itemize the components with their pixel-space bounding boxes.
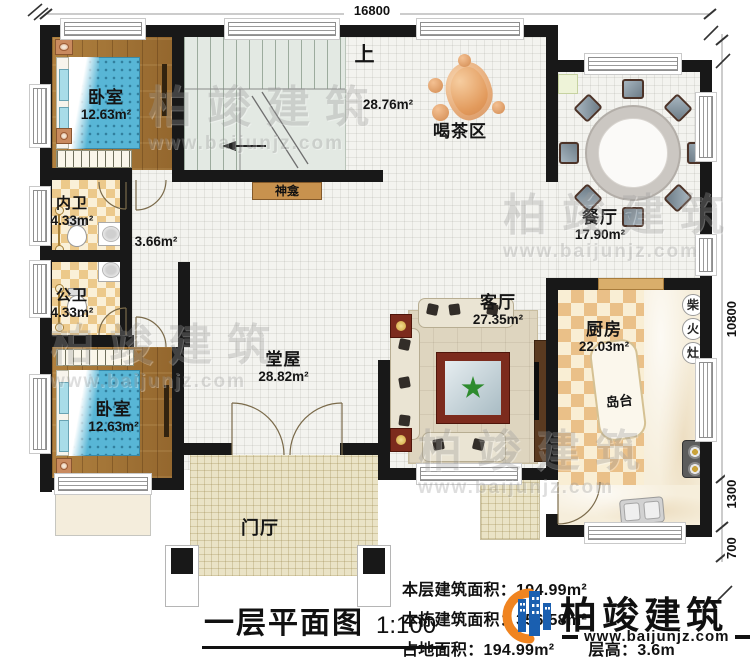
stairs-up-label: 上 — [350, 44, 380, 66]
window — [64, 22, 142, 36]
plan-scale: 1:100 — [376, 612, 436, 639]
pass-counter — [598, 278, 664, 290]
sofa-pillow — [472, 438, 485, 451]
wall — [172, 170, 383, 182]
pebble — [458, 54, 471, 67]
room-label-inner-bath: 内卫 4.33m² — [40, 196, 104, 228]
wall — [52, 250, 122, 262]
kitchen-entry-step — [480, 478, 540, 540]
window — [699, 362, 713, 438]
stair-treads-upper — [184, 37, 345, 89]
wardrobe — [56, 150, 132, 168]
nightstand — [56, 128, 72, 144]
wall — [172, 347, 184, 490]
sofa-pillow — [398, 376, 411, 389]
bay-slab-bedroom-bottom — [55, 492, 151, 536]
wall — [40, 335, 134, 347]
window — [699, 96, 713, 158]
sofa-pillow — [432, 438, 445, 451]
cabinet — [558, 74, 578, 94]
kitchen-sink — [619, 496, 665, 526]
url-bar-right — [735, 635, 750, 639]
room-label-dining: 餐厅 17.90m² — [555, 208, 645, 242]
stat-storey-height: 层高：3.6m — [588, 642, 675, 659]
window — [33, 378, 47, 450]
window — [588, 526, 682, 540]
dimension-right-low: 700 — [725, 529, 739, 567]
pebble — [428, 78, 443, 93]
window — [588, 57, 678, 71]
room-label-tea: 喝茶区 — [420, 122, 500, 141]
plan-title: 一层平面图 — [204, 607, 364, 640]
porch-column — [363, 548, 385, 574]
wall — [172, 37, 184, 182]
room-label-living: 客厅 27.35m² — [452, 293, 544, 327]
pebble — [492, 101, 505, 114]
wall — [40, 168, 132, 180]
window — [699, 238, 713, 272]
pebble — [432, 104, 449, 121]
tv — [162, 64, 167, 116]
toilet-bowl — [67, 225, 87, 247]
nightstand — [55, 39, 73, 55]
room-label-foyer: 门厅 — [238, 518, 282, 538]
stair-treads-lower — [184, 89, 240, 170]
wall — [664, 278, 712, 290]
window — [58, 477, 148, 491]
nightstand — [56, 458, 72, 474]
room-label-bedroom-bottom: 卧室 12.63m² — [66, 400, 161, 434]
dining-chair — [622, 79, 644, 99]
room-label-public-bath: 公卫 4.33m² — [40, 288, 104, 320]
window — [33, 88, 47, 144]
shrine: 神龛 — [252, 182, 322, 200]
wall — [546, 37, 558, 182]
sink-basin — [643, 500, 661, 519]
window — [420, 22, 520, 36]
url-bar-left — [562, 635, 578, 639]
wardrobe — [56, 349, 134, 366]
sofa-pillow — [398, 338, 411, 351]
window — [228, 22, 336, 36]
side-table — [390, 314, 412, 338]
brand-logo-icon — [496, 584, 560, 646]
wall — [120, 180, 132, 347]
floorplan-canvas: 神龛 — [0, 0, 750, 649]
dimension-right-mid: 1300 — [725, 471, 739, 517]
room-label-bedroom-top: 卧室 12.63m² — [61, 88, 151, 122]
porch-column — [171, 548, 193, 574]
wall — [178, 262, 190, 347]
wall — [546, 278, 558, 480]
tea-area-value: 28.76m² — [353, 97, 423, 112]
coffee-table — [436, 352, 510, 424]
side-table — [390, 428, 412, 452]
tv — [164, 385, 169, 437]
corridor-area-label: 3.66m² — [128, 234, 184, 249]
foyer-porch — [190, 455, 378, 576]
sofa-pillow — [398, 414, 410, 426]
wall — [378, 360, 390, 470]
dimension-right: 10800 — [725, 291, 739, 347]
room-label-hall: 堂屋 28.82m² — [236, 350, 331, 384]
room-label-kitchen: 厨房 22.03m² — [568, 320, 640, 354]
plan-title-block: 一层平面图1:100 — [202, 598, 446, 649]
dining-chair — [559, 142, 579, 164]
sink-basin — [623, 502, 641, 521]
sofa-chair — [422, 432, 506, 462]
tv — [534, 362, 539, 420]
wall — [340, 443, 378, 455]
sofa-pillow — [426, 303, 439, 316]
wall — [184, 443, 232, 455]
sofa-main — [390, 328, 420, 440]
wall — [558, 278, 598, 290]
dimension-top: 16800 — [344, 4, 400, 18]
window — [420, 467, 518, 481]
dining-table — [585, 105, 681, 201]
